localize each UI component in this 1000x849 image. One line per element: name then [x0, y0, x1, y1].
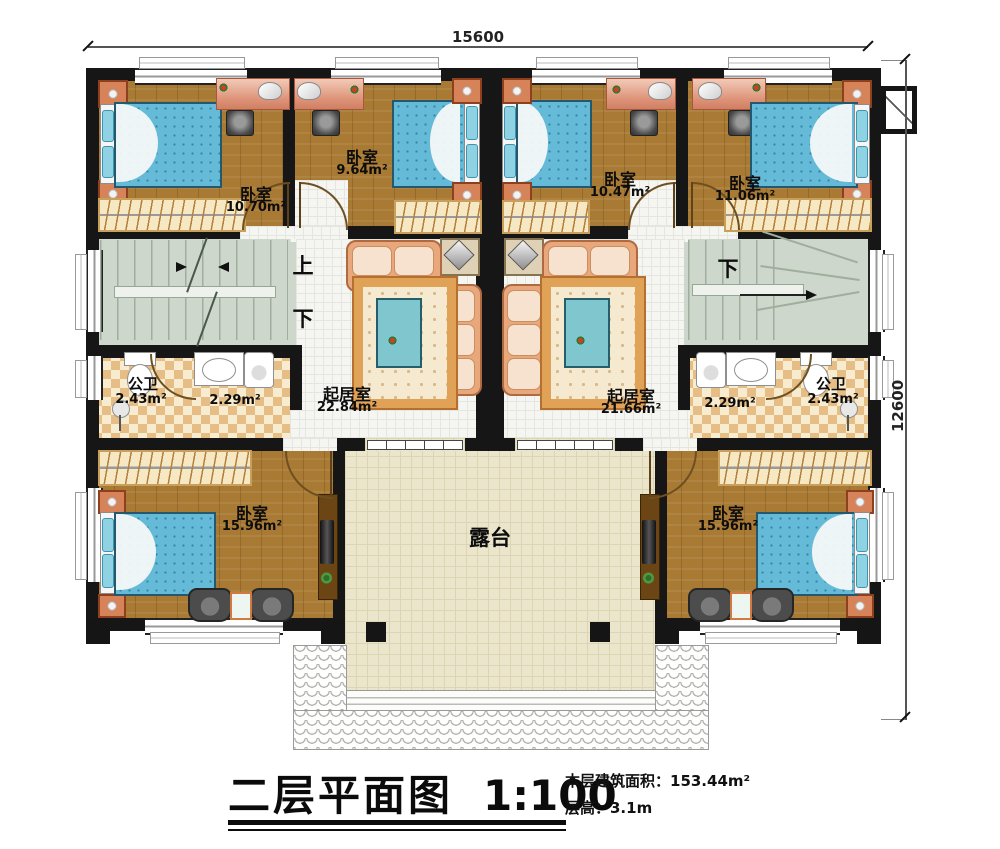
room-area: 2.29m²: [704, 396, 755, 411]
coffee-table: [564, 298, 610, 368]
room-area: 15.96m²: [222, 519, 282, 534]
shower-stem: [119, 415, 121, 431]
computer-monitor: [642, 520, 656, 564]
floor-height-info: 层高：3.1m: [565, 797, 652, 818]
chair: [688, 588, 732, 622]
roof-apron-bottom: [293, 710, 709, 750]
room-area: 22.84m²: [317, 400, 377, 415]
flower-decor: [350, 85, 359, 94]
chair: [188, 588, 232, 622]
room-area: 2.43m²: [115, 392, 166, 407]
door-leaf: [673, 182, 675, 228]
sill-top-2: [335, 57, 439, 69]
shower-stem: [847, 415, 849, 431]
door-gap-bath-right: [678, 410, 690, 440]
room-area: 10.70m²: [226, 200, 286, 215]
door-gap-bath-left: [290, 410, 302, 440]
nightstand: [98, 594, 126, 618]
pillow: [856, 554, 868, 588]
room-label: 公卫: [816, 373, 846, 394]
wall-party-center: [476, 68, 504, 451]
sill-top-1: [139, 57, 245, 69]
flower-decor: [576, 336, 585, 345]
stairs-direction-arrow: [806, 290, 817, 300]
wall-bed3-bed4: [676, 80, 688, 232]
stairs-arrow-line: [740, 294, 810, 296]
stairs-direction-arrow: [218, 262, 229, 272]
flower-decor: [752, 83, 761, 92]
wardrobe: [394, 200, 482, 234]
nightstand: [846, 594, 874, 618]
room-area: 11.06m²: [715, 189, 775, 204]
floor-area-info: 本层建筑面积：153.44m²: [565, 770, 750, 791]
sofa-cushion: [507, 324, 541, 356]
pillow: [856, 110, 868, 142]
door-leaf: [299, 182, 301, 228]
door-leaf: [691, 182, 693, 228]
sill-top-4: [728, 57, 830, 69]
washbasin: [734, 358, 768, 382]
flower-decor: [388, 336, 397, 345]
stairs-down-label: 下: [718, 253, 739, 283]
sofa-cushion: [507, 290, 541, 322]
sofa-cushion: [590, 246, 630, 276]
sill-bottom-left: [150, 632, 280, 644]
sofa-cushion: [507, 358, 541, 390]
side-table: [730, 592, 752, 620]
sill-bottom-right: [705, 632, 837, 644]
chair: [250, 588, 294, 622]
pillow: [102, 554, 114, 588]
room-area: 21.66m²: [601, 402, 661, 417]
terrace-label: 露台: [469, 522, 511, 552]
wardrobe: [98, 450, 252, 486]
sill-left-1: [75, 254, 87, 330]
flower-decor: [219, 83, 228, 92]
door-leaf: [649, 451, 651, 497]
sill-right-1: [882, 254, 894, 330]
washbasin: [202, 358, 236, 382]
lamp-shade: [648, 82, 672, 100]
pillow: [856, 146, 868, 178]
corner-pier-3: [655, 618, 679, 644]
stairs-direction-arrow: [176, 262, 187, 272]
door-leaf: [287, 182, 289, 228]
pillow: [466, 106, 478, 140]
pillow: [504, 144, 516, 178]
lamp-shade: [258, 82, 282, 100]
wardrobe: [718, 450, 872, 486]
computer-monitor: [312, 110, 340, 136]
dimension-label-top: 15600: [452, 28, 504, 46]
room-label: 公卫: [128, 373, 158, 394]
corner-pier-4: [857, 618, 881, 644]
pillow: [504, 106, 516, 140]
door-leaf: [330, 451, 332, 497]
dimension-line-top: [88, 46, 868, 48]
corner-pier-2: [321, 618, 345, 644]
plant: [320, 572, 333, 584]
room-area: 15.96m²: [698, 519, 758, 534]
wardrobe: [98, 198, 246, 232]
computer-monitor: [320, 520, 334, 564]
page-title: 二层平面图: [228, 762, 453, 823]
sill-top-3: [536, 57, 638, 69]
nightstand: [98, 490, 126, 514]
pillow: [466, 144, 478, 178]
door-gap-bedroom-bl: [283, 438, 337, 451]
washing-machine: [696, 352, 726, 388]
sill-left-3: [75, 492, 87, 580]
room-area: 2.43m²: [807, 392, 858, 407]
terrace-column: [590, 622, 610, 642]
chimney-box: [881, 86, 917, 134]
nightstand: [846, 490, 874, 514]
terrace-floor: [345, 445, 655, 693]
floor-plan: 卧室 10.70m² 卧室 9.64m² 卧室 10.47m² 卧室 11.06…: [0, 0, 1000, 849]
pillow: [102, 146, 114, 178]
lamp-shade: [297, 82, 321, 100]
computer-monitor: [226, 110, 254, 136]
terrace-parapet: [345, 690, 657, 712]
coffee-table: [376, 298, 422, 368]
lamp-shade: [698, 82, 722, 100]
terrace-door-left: [367, 440, 463, 450]
washing-machine: [244, 352, 274, 388]
room-area: 2.29m²: [209, 393, 260, 408]
plant: [642, 572, 655, 584]
terrace-column: [366, 622, 386, 642]
stairs-left-handrail: [114, 286, 276, 298]
room-area: 9.64m²: [336, 163, 387, 178]
nightstand: [502, 78, 532, 104]
title-underline-thick: [228, 820, 566, 825]
corner-pier-1: [86, 618, 110, 644]
nightstand: [452, 78, 482, 104]
stairs-down-label: 下: [293, 303, 314, 333]
computer-monitor: [630, 110, 658, 136]
sill-right-3: [882, 492, 894, 580]
title-underline-thin: [228, 829, 566, 831]
room-area: 10.47m²: [590, 185, 650, 200]
sofa-cushion: [394, 246, 434, 276]
sofa-cushion: [352, 246, 392, 276]
door-gap-bedroom-br: [643, 438, 697, 451]
dimension-label-right: 12600: [889, 380, 907, 432]
flower-decor: [612, 85, 621, 94]
window-left-bath: [86, 356, 103, 400]
pillow: [102, 110, 114, 142]
sofa-cushion: [548, 246, 588, 276]
stairs-up-label: 上: [293, 250, 314, 280]
wardrobe: [502, 200, 590, 234]
side-table: [230, 592, 252, 620]
pillow: [102, 518, 114, 552]
pillow: [856, 518, 868, 552]
sill-left-2: [75, 360, 87, 398]
chair: [750, 588, 794, 622]
terrace-door-right: [517, 440, 613, 450]
title-block: 二层平面图 1:100: [228, 762, 617, 823]
